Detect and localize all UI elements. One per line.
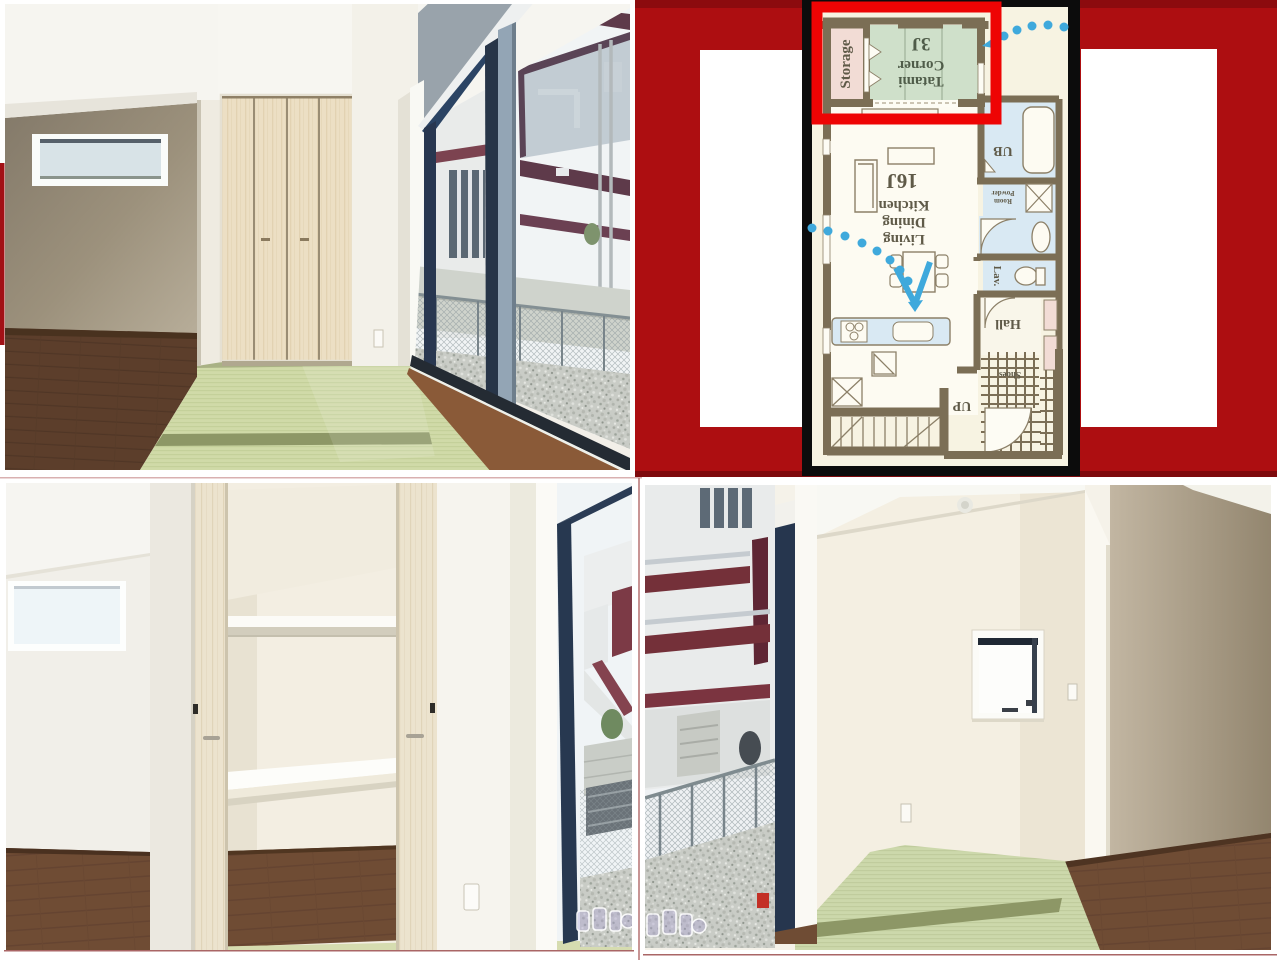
svg-text:Hall: Hall	[995, 316, 1021, 331]
svg-text:Living: Living	[883, 231, 925, 247]
svg-text:UB: UB	[993, 143, 1012, 158]
svg-text:16J: 16J	[886, 169, 918, 193]
svg-text:Dining: Dining	[882, 214, 926, 230]
svg-text:3J: 3J	[912, 33, 931, 54]
svg-text:Lav.: Lav.	[991, 266, 1003, 287]
svg-text:Powder: Powder	[992, 189, 1015, 197]
svg-text:UP: UP	[952, 398, 971, 413]
svg-text:Storage: Storage	[838, 39, 854, 88]
svg-text:Corner: Corner	[897, 57, 944, 73]
svg-text:Kitchen: Kitchen	[878, 197, 929, 213]
svg-text:Shoes: Shoes	[999, 370, 1022, 380]
svg-text:Room: Room	[994, 197, 1012, 205]
svg-text:Tatami: Tatami	[898, 73, 943, 89]
